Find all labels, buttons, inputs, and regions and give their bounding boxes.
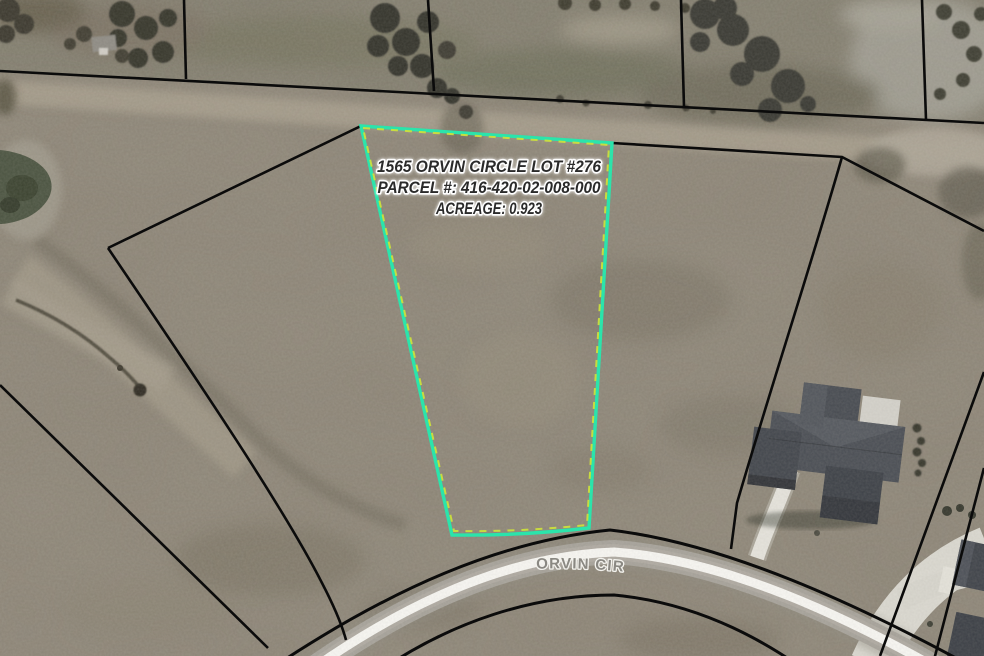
aerial-parcel-map: 1565 ORVIN CIRCLE LOT #276 PARCEL #: 416… xyxy=(0,0,984,656)
parcel-address-label: 1565 ORVIN CIRCLE LOT #276 xyxy=(377,157,601,176)
parcel-acreage-label: ACREAGE: 0.923 xyxy=(435,199,542,218)
map-canvas: 1565 ORVIN CIRCLE LOT #276 PARCEL #: 416… xyxy=(0,0,984,656)
parcel-number-label: PARCEL #: 416-420-02-008-000 xyxy=(378,178,601,197)
